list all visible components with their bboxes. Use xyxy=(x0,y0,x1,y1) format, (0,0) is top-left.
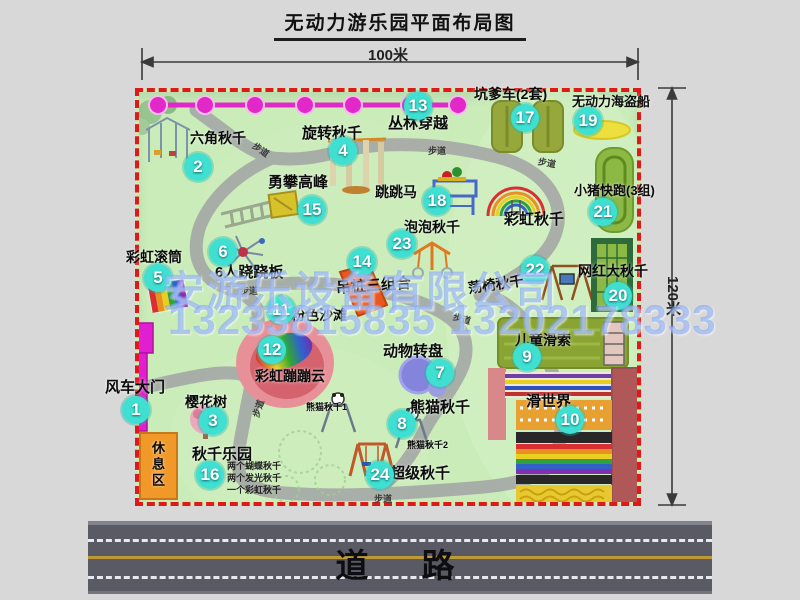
width-dimension-label: 100米 xyxy=(368,44,408,65)
page-title-text: 无动力游乐园平面布局图 xyxy=(274,8,525,41)
height-dimension-label: 120米 xyxy=(662,276,683,316)
road-label: 道 路 xyxy=(88,539,712,587)
page: 无动力游乐园平面布局图 xyxy=(0,0,800,600)
park-map-area xyxy=(135,88,641,506)
road: 道 路 xyxy=(88,521,712,594)
page-title: 无动力游乐园平面布局图 xyxy=(0,8,800,41)
